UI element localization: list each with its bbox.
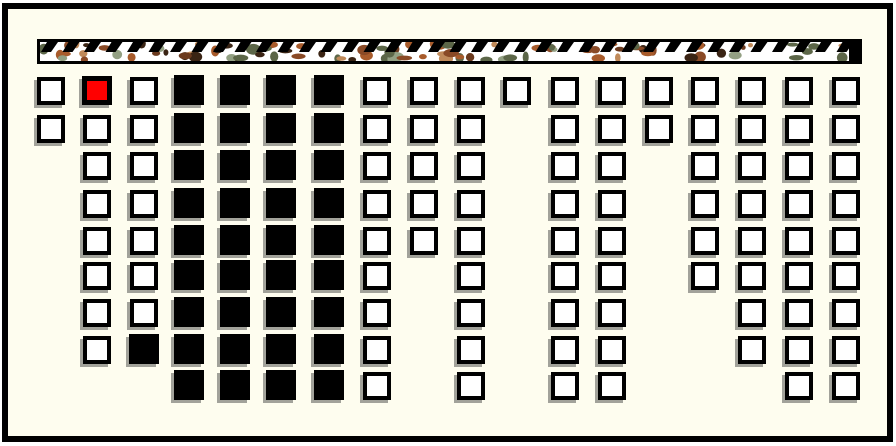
grid-cell-filled[interactable] [129,334,159,364]
grid-cell[interactable] [832,336,860,364]
grid-cell[interactable] [738,299,766,327]
grid-cell[interactable] [457,152,485,180]
grid-cell[interactable] [738,77,766,105]
grid-cell-filled[interactable] [220,297,250,327]
grid-cell[interactable] [785,190,813,218]
app-window [0,0,896,446]
grid-cell[interactable] [551,190,579,218]
grid-cell-filled[interactable] [174,225,204,255]
grid-cell[interactable] [832,190,860,218]
grid-cell-filled[interactable] [220,150,250,180]
grid-cell-filled[interactable] [220,334,250,364]
grid-cell-filled[interactable] [266,260,296,290]
grid-cell[interactable] [598,152,626,180]
grid-cell[interactable] [738,115,766,143]
grid-cell[interactable] [785,77,813,105]
grid-cell[interactable] [83,115,111,143]
grid-cell-filled[interactable] [266,297,296,327]
grid-cell[interactable] [551,372,579,400]
grid-cell-filled[interactable] [174,334,204,364]
grid-cell[interactable] [410,227,438,255]
grid-cell-filled[interactable] [266,150,296,180]
grid-cell[interactable] [832,372,860,400]
board-frame [2,3,893,442]
grid-cell[interactable] [785,227,813,255]
grid-cell[interactable] [551,152,579,180]
grid-cell-filled[interactable] [220,225,250,255]
grid-cell[interactable] [130,227,158,255]
grid-cell[interactable] [785,262,813,290]
grid-cell[interactable] [457,262,485,290]
grid-cell[interactable] [37,115,65,143]
grid-cell[interactable] [598,227,626,255]
grid-cell-filled[interactable] [314,260,344,290]
grid-cell-filled[interactable] [220,260,250,290]
grid-cell[interactable] [645,77,673,105]
grid-cell[interactable] [598,372,626,400]
grid-cell[interactable] [598,77,626,105]
grid-cell-filled[interactable] [266,113,296,143]
grid-cell[interactable] [551,262,579,290]
grid-cell[interactable] [363,115,391,143]
grid-cell[interactable] [130,190,158,218]
grid-cell[interactable] [457,372,485,400]
grid-cell[interactable] [457,299,485,327]
grid-cell[interactable] [598,190,626,218]
grid-cell[interactable] [785,115,813,143]
grid-cell-filled[interactable] [174,113,204,143]
grid-cell[interactable] [363,262,391,290]
grid-cell[interactable] [503,77,531,105]
grid-cell[interactable] [551,115,579,143]
grid-cell[interactable] [363,77,391,105]
grid-cell[interactable] [691,227,719,255]
grid-cell[interactable] [551,336,579,364]
grid-cell[interactable] [551,299,579,327]
grid-cell[interactable] [785,152,813,180]
textured-strip-graphic [37,39,862,64]
grid-cell[interactable] [130,299,158,327]
grid-cell-filled[interactable] [220,75,250,105]
grid-cell-filled[interactable] [266,334,296,364]
grid-cell[interactable] [691,262,719,290]
grid-cell[interactable] [551,77,579,105]
grid-cell[interactable] [832,152,860,180]
grid-cell[interactable] [457,77,485,105]
grid-cell-filled[interactable] [266,370,296,400]
grid-cell[interactable] [598,336,626,364]
grid-cell[interactable] [457,115,485,143]
grid-cell[interactable] [785,372,813,400]
grid-cell-filled[interactable] [314,113,344,143]
grid-cell[interactable] [738,190,766,218]
grid-cell-filled[interactable] [314,75,344,105]
grid-cell-filled[interactable] [220,370,250,400]
grid-cell[interactable] [691,152,719,180]
grid-cell[interactable] [738,262,766,290]
grid-cell[interactable] [410,152,438,180]
grid-cell-highlighted[interactable] [82,76,112,105]
grid-cell[interactable] [83,299,111,327]
grid-cell-filled[interactable] [266,75,296,105]
grid-cell-filled[interactable] [266,188,296,218]
grid-cell-filled[interactable] [220,113,250,143]
grid-cell-filled[interactable] [174,260,204,290]
grid-cell[interactable] [691,115,719,143]
grid-cell[interactable] [832,77,860,105]
grid-cell-filled[interactable] [174,297,204,327]
grid-cell-filled[interactable] [266,225,296,255]
grid-cell[interactable] [691,77,719,105]
grid-cell-filled[interactable] [314,150,344,180]
grid-cell[interactable] [598,115,626,143]
grid-cell[interactable] [130,77,158,105]
grid-cell-filled[interactable] [174,188,204,218]
grid-cell-filled[interactable] [314,297,344,327]
grid-cell-filled[interactable] [174,150,204,180]
grid-cell[interactable] [363,299,391,327]
grid-cell[interactable] [83,152,111,180]
grid-cell[interactable] [645,115,673,143]
grid-cell[interactable] [785,336,813,364]
grid-cell[interactable] [363,372,391,400]
grid-cell[interactable] [363,152,391,180]
grid-cell[interactable] [130,262,158,290]
grid-cell[interactable] [598,299,626,327]
grid-cell[interactable] [738,336,766,364]
grid-cell-filled[interactable] [174,370,204,400]
grid-cell[interactable] [363,190,391,218]
grid-cell[interactable] [83,262,111,290]
grid-cell-filled[interactable] [314,188,344,218]
grid-cell-filled[interactable] [314,334,344,364]
grid-cell-filled[interactable] [314,225,344,255]
grid-cell[interactable] [130,152,158,180]
grid-cell[interactable] [410,190,438,218]
grid-cell[interactable] [691,190,719,218]
grid-cell[interactable] [832,115,860,143]
textured-strip [37,39,862,64]
grid-cell[interactable] [832,299,860,327]
grid-cell-filled[interactable] [174,75,204,105]
grid-cell[interactable] [598,262,626,290]
grid-cell[interactable] [457,227,485,255]
grid-cell[interactable] [832,262,860,290]
grid-cell-filled[interactable] [314,370,344,400]
grid-cell[interactable] [551,227,579,255]
grid-cell[interactable] [738,152,766,180]
grid-cell[interactable] [83,190,111,218]
grid-cell-filled[interactable] [220,188,250,218]
grid-cell[interactable] [363,336,391,364]
grid-cell[interactable] [832,227,860,255]
grid-cell[interactable] [785,299,813,327]
grid-cell[interactable] [130,115,158,143]
grid-cell[interactable] [363,227,391,255]
grid-cell[interactable] [83,336,111,364]
grid-cell[interactable] [457,336,485,364]
grid-cell[interactable] [37,77,65,105]
grid-cell[interactable] [738,227,766,255]
grid-cell[interactable] [410,77,438,105]
grid-cell[interactable] [83,227,111,255]
grid-cell[interactable] [457,190,485,218]
grid-cell[interactable] [410,115,438,143]
